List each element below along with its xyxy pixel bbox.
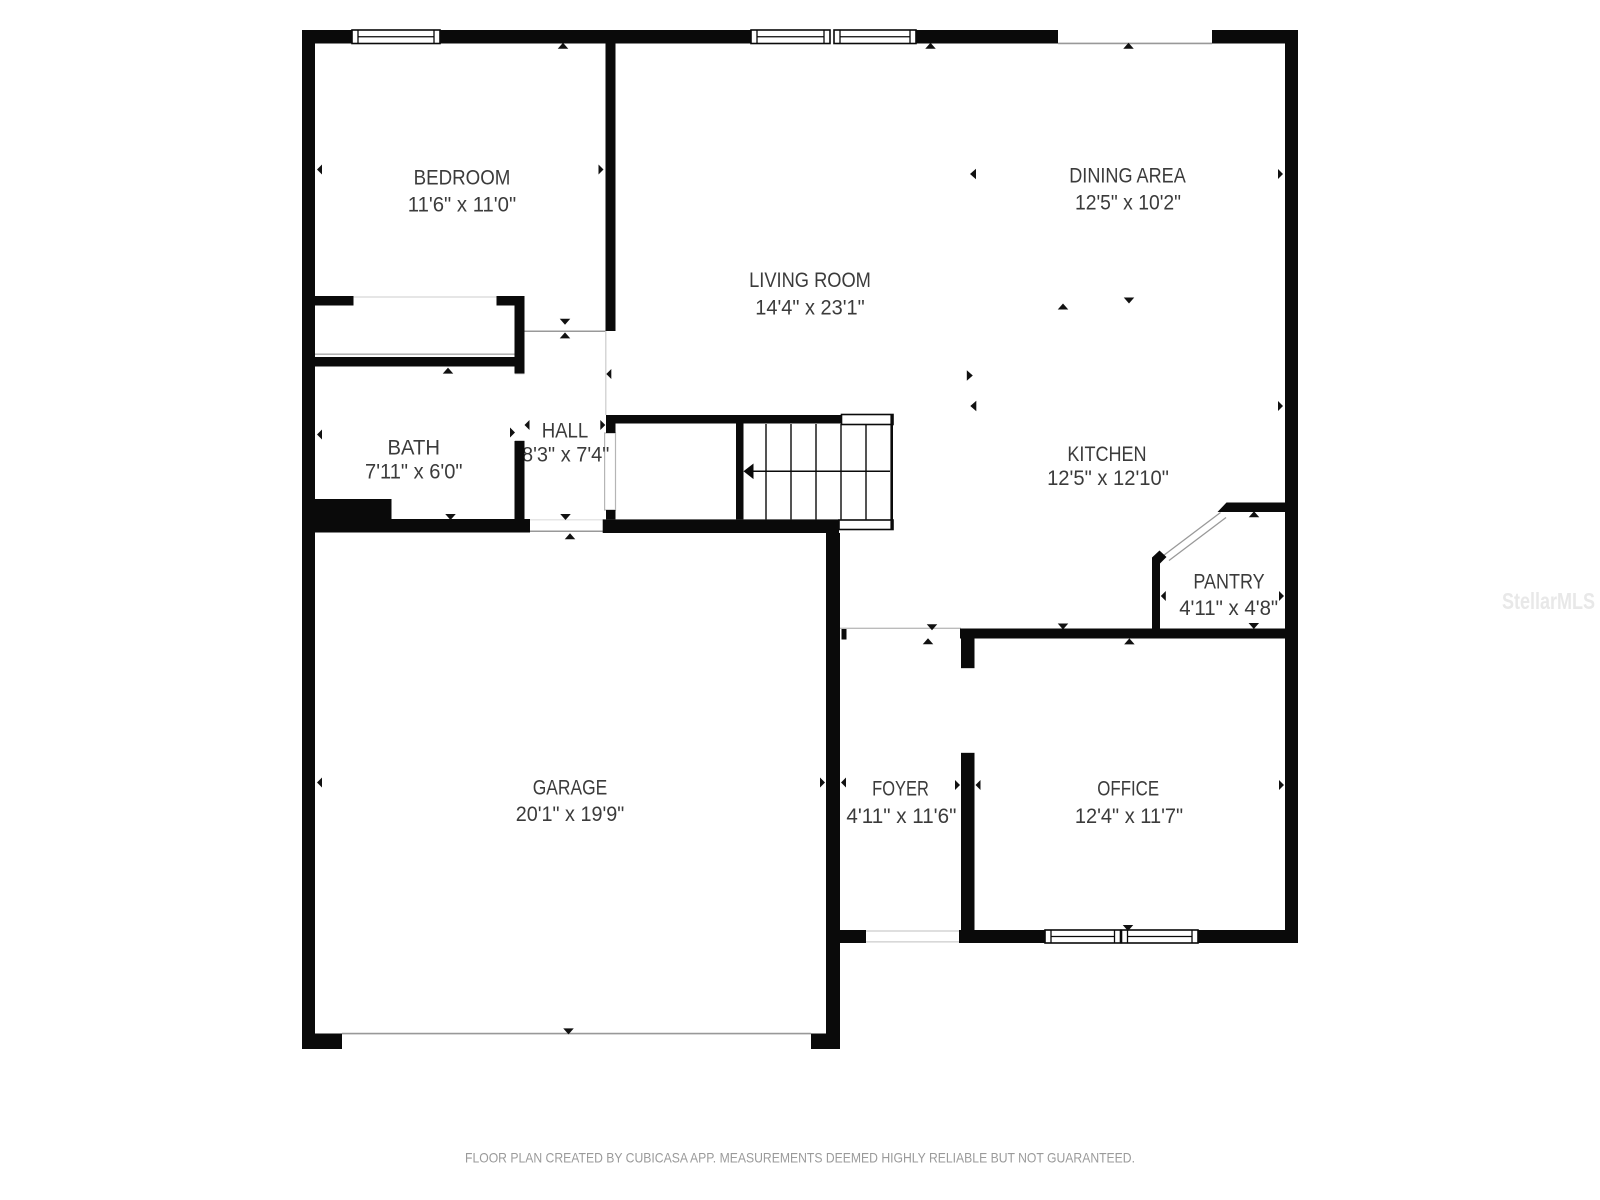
svg-text:KITCHEN: KITCHEN (1067, 442, 1146, 466)
svg-text:4'11" x 4'8": 4'11" x 4'8" (1179, 596, 1278, 620)
svg-text:PANTRY: PANTRY (1193, 570, 1264, 594)
svg-text:GARAGE: GARAGE (533, 776, 608, 800)
svg-text:4'11" x 11'6": 4'11" x 11'6" (846, 804, 956, 828)
svg-text:StellarMLS: StellarMLS (1502, 588, 1595, 614)
svg-text:20'1" x 19'9": 20'1" x 19'9" (516, 802, 625, 826)
svg-text:HALL: HALL (542, 419, 589, 443)
svg-text:FLOOR PLAN CREATED BY CUBICASA: FLOOR PLAN CREATED BY CUBICASA APP. MEAS… (465, 1150, 1135, 1166)
svg-text:7'11" x 6'0": 7'11" x 6'0" (365, 460, 463, 484)
svg-text:8'3" x 7'4": 8'3" x 7'4" (522, 443, 609, 467)
svg-text:DINING AREA: DINING AREA (1069, 164, 1186, 188)
svg-text:12'4" x 11'7": 12'4" x 11'7" (1075, 804, 1183, 828)
svg-text:BEDROOM: BEDROOM (414, 166, 511, 190)
svg-text:12'5" x 10'2": 12'5" x 10'2" (1075, 191, 1181, 215)
svg-text:14'4" x 23'1": 14'4" x 23'1" (755, 296, 864, 320)
svg-text:11'6" x 11'0": 11'6" x 11'0" (408, 193, 516, 217)
svg-text:12'5" x 12'10": 12'5" x 12'10" (1047, 466, 1169, 490)
svg-text:LIVING ROOM: LIVING ROOM (749, 268, 871, 292)
svg-text:BATH: BATH (388, 436, 441, 460)
svg-text:FOYER: FOYER (872, 777, 929, 801)
svg-text:OFFICE: OFFICE (1097, 777, 1159, 801)
